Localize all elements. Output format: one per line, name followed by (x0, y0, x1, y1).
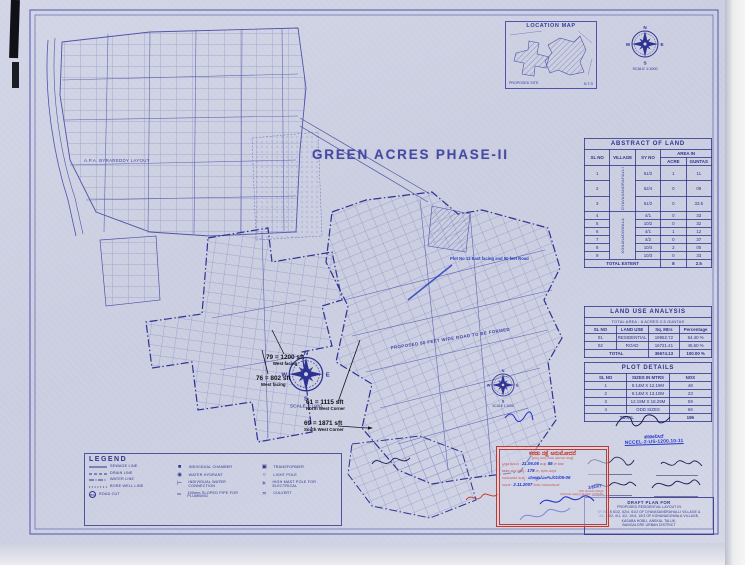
signature-squiggle (650, 476, 702, 496)
table-row: 29.14M X 13.10M23 (585, 390, 712, 398)
plot-69-annotation: 69 = 1871 sft South West Corner (304, 421, 344, 432)
table-row: 510/2032 (585, 219, 712, 227)
plot-details-title: PLOT DETAILS (585, 363, 712, 374)
location-map-sketch (508, 29, 594, 79)
legend-item: BW ROAD CUT (89, 491, 168, 498)
solid-line-sample (89, 465, 107, 469)
plot-76-facing: West facing (256, 383, 291, 388)
village-2-cell: KONANADOWALA (610, 211, 635, 259)
approval-reference: ಪರಿಶೀಲಿಸಿದೆ NCCEL-2-US-1200.10-11 (602, 432, 706, 447)
culvert-icon: ≍ (258, 492, 270, 498)
dashed-line-sample (89, 472, 107, 476)
stamp-line: ಅನುಮೋದನೆ ಸಂಖ್ಯೆ : ಬೆಂಅಪ್ರಾ/ಎಲ್ಒ/01/05-06 (502, 475, 604, 482)
table-header-row: SL NO SIZES IN MTRS NOS (585, 374, 712, 382)
legend-item: WATER LINE (89, 478, 168, 482)
plot-79-facing: West facing (266, 362, 304, 367)
legend-item: DRAIN LINE (89, 472, 168, 476)
pipe-icon: ═ (174, 493, 185, 499)
signature-squiggle (658, 456, 704, 474)
plot-61-corner: North West Corner (306, 407, 345, 412)
legend-item: ○LIGHT POLE (258, 473, 337, 479)
table-row: 1 DYAVASANDRAHALLI 61/2 1 11 (585, 166, 712, 181)
handwritten-date: 21.06.05 (522, 461, 539, 466)
legend-item: ■INDIVIDUAL CHAMBER (174, 465, 253, 471)
plot-13-note: Plot No 13 East facing and 50 feet Road (450, 257, 529, 261)
plot-76-area: 76 = 802 sft (256, 375, 291, 382)
handwritten-number: 178 (527, 468, 534, 473)
legend-title: LEGEND (89, 456, 337, 463)
handwritten-reference: ಬೆಂಅಪ್ರಾ/ಎಲ್ಒ/01/05-06 (528, 475, 570, 480)
handwritten-approval-date: 2.11.2007 (513, 482, 532, 487)
scanned-blueprint-page: N S E W SCALE 1:1000 (0, 0, 745, 565)
plan-title: GREEN ACRES PHASE-II (312, 147, 509, 162)
transformer-icon: ▣ (258, 465, 270, 471)
hydrant-icon: ◉ (174, 473, 186, 479)
plot-79-area: 79 = 1200 sft (266, 354, 304, 361)
land-use-title: LAND USE ANALYSIS (585, 307, 712, 318)
table-header-row: SL NO LAND USE Sq. Mtrs Percentage (585, 326, 712, 334)
proposed-site-label: PROPOSED SITE (509, 82, 538, 86)
small-plot-cluster (100, 236, 160, 306)
legend-item: BORE WELL LINE (89, 485, 168, 489)
handwritten-number: 55 (548, 461, 553, 466)
compass-top-right (626, 25, 664, 71)
table-row: 19.14M X 12.19M48 (585, 382, 712, 390)
legend-item: ═150mm SLOPED PIPE FOR PLUMBING (174, 492, 253, 500)
high-mast-icon: ✳ (258, 482, 269, 488)
legend-item: SEWAGE LINE (89, 465, 168, 469)
table-row: 74/2037 (585, 235, 712, 243)
table-row: 4 KONANADOWALA 4/1 0 33 (585, 211, 712, 219)
land-use-analysis-table: LAND USE ANALYSIS TOTAL AREA : 8 ACRES 2… (584, 306, 712, 358)
plot-61-annotation: 61 = 1115 sft North West Corner (306, 400, 345, 411)
dotted-line-sample (89, 485, 107, 489)
plot-61-area: 61 = 1115 sft (306, 399, 344, 406)
table-row: 02ROAD16721.4145.60 % (585, 342, 712, 350)
stamp-inner-border: ಕರಡು ನಕ್ಷೆ ಅನುಮೋದನೆ (ಮಾನ್ಯ ಅವಧಿ ಎರಡು ವರ್… (499, 449, 607, 525)
plot-69-area: 69 = 1871 sft (304, 420, 342, 427)
table-row: 262/4009 (585, 181, 712, 196)
light-pole-icon: ○ (258, 473, 270, 479)
chamber-icon: ■ (174, 465, 186, 471)
table-total-row: TOTAL 36674.13 100.00 % (585, 350, 712, 358)
legend-item: ✳HIGH MAST POLE FOR ELECTRICAL (258, 481, 337, 489)
village-1-cell: DYAVASANDRAHALLI (610, 166, 635, 212)
table-row: 910/3033 (585, 251, 712, 259)
plot-76-annotation: 76 = 802 sft West facing (256, 376, 291, 387)
location-map: LOCATION MAP PROPOSED SITE N.T.S (505, 21, 597, 89)
table-row: 01RESIDENTIAL19952.7254.40 % (585, 334, 712, 342)
table-total-row: TOTAL EXTENT 8 2.5 (585, 259, 712, 267)
stamp-signature-squiggle (538, 492, 596, 510)
table-row: 64/1112 (585, 227, 712, 235)
signature-squiggle (614, 412, 674, 434)
park-hatched-area (428, 206, 470, 252)
reference-number: NCCEL-2-US-1200.10-11 (602, 438, 706, 447)
legend-column-water: ■INDIVIDUAL CHAMBER ◉WATER HYDRANT ⊢INDI… (174, 465, 253, 499)
legend-item: ⊢INDIVIDUAL WATER CONNECTION (174, 481, 253, 489)
stamp-line: ಸ್ವೀಕೃತ ದಿನಾಂಕ : 21.06.05 ಮತ್ತು 55 ನೇ ಕಡ… (502, 461, 604, 468)
land-use-subtitle: TOTAL AREA : 8 ACRES 2.5 GUNTAS (585, 318, 712, 326)
legend-item: ▣TRANSFORMER (258, 465, 337, 471)
abstract-title: ABSTRACT OF LAND (585, 139, 712, 150)
legend-item: ≍CULVERT (258, 492, 337, 498)
abstract-of-land-table: ABSTRACT OF LAND SL NO VILLAGE SY NO ARE… (584, 138, 712, 268)
stamp-line: ಕಡತದ ಹಾಳೆ ಸಂಖ್ಯೆ : 178 ನೇ, ಕಛೇರಿ ಟಿಪ್ಪಣಿ (502, 468, 604, 475)
legend-column-electrical: ▣TRANSFORMER ○LIGHT POLE ✳HIGH MAST POLE… (258, 465, 337, 499)
approval-stamp: ಕರಡು ನಕ್ಷೆ ಅನುಮೋದನೆ (ಮಾನ್ಯ ಅವಧಿ ಎರಡು ವರ್… (496, 446, 609, 527)
nts-label: N.T.S (584, 82, 593, 86)
legend: LEGEND SEWAGE LINE DRAIN LINE WATER LINE… (84, 453, 342, 526)
legend-column-lines: SEWAGE LINE DRAIN LINE WATER LINE BORE W… (89, 465, 168, 499)
adjacent-layout-label: A.P.A. BYRAREDDY LAYOUT (84, 158, 150, 163)
legend-item: ◉WATER HYDRANT (174, 473, 253, 479)
borewell-symbol: BW (89, 491, 96, 498)
table-row: 312.19M X 18.29M59 (585, 398, 712, 406)
plot-69-corner: South West Corner (304, 428, 344, 433)
table-header-row: SL NO VILLAGE SY NO AREA IN (585, 150, 712, 158)
table-row: 810/4200 (585, 243, 712, 251)
water-connection-icon: ⊢ (174, 482, 186, 488)
plot-79-annotation: 79 = 1200 sft West facing (266, 355, 304, 366)
table-row: 361/2033.5 (585, 196, 712, 211)
dashdot-line-sample (89, 478, 107, 482)
